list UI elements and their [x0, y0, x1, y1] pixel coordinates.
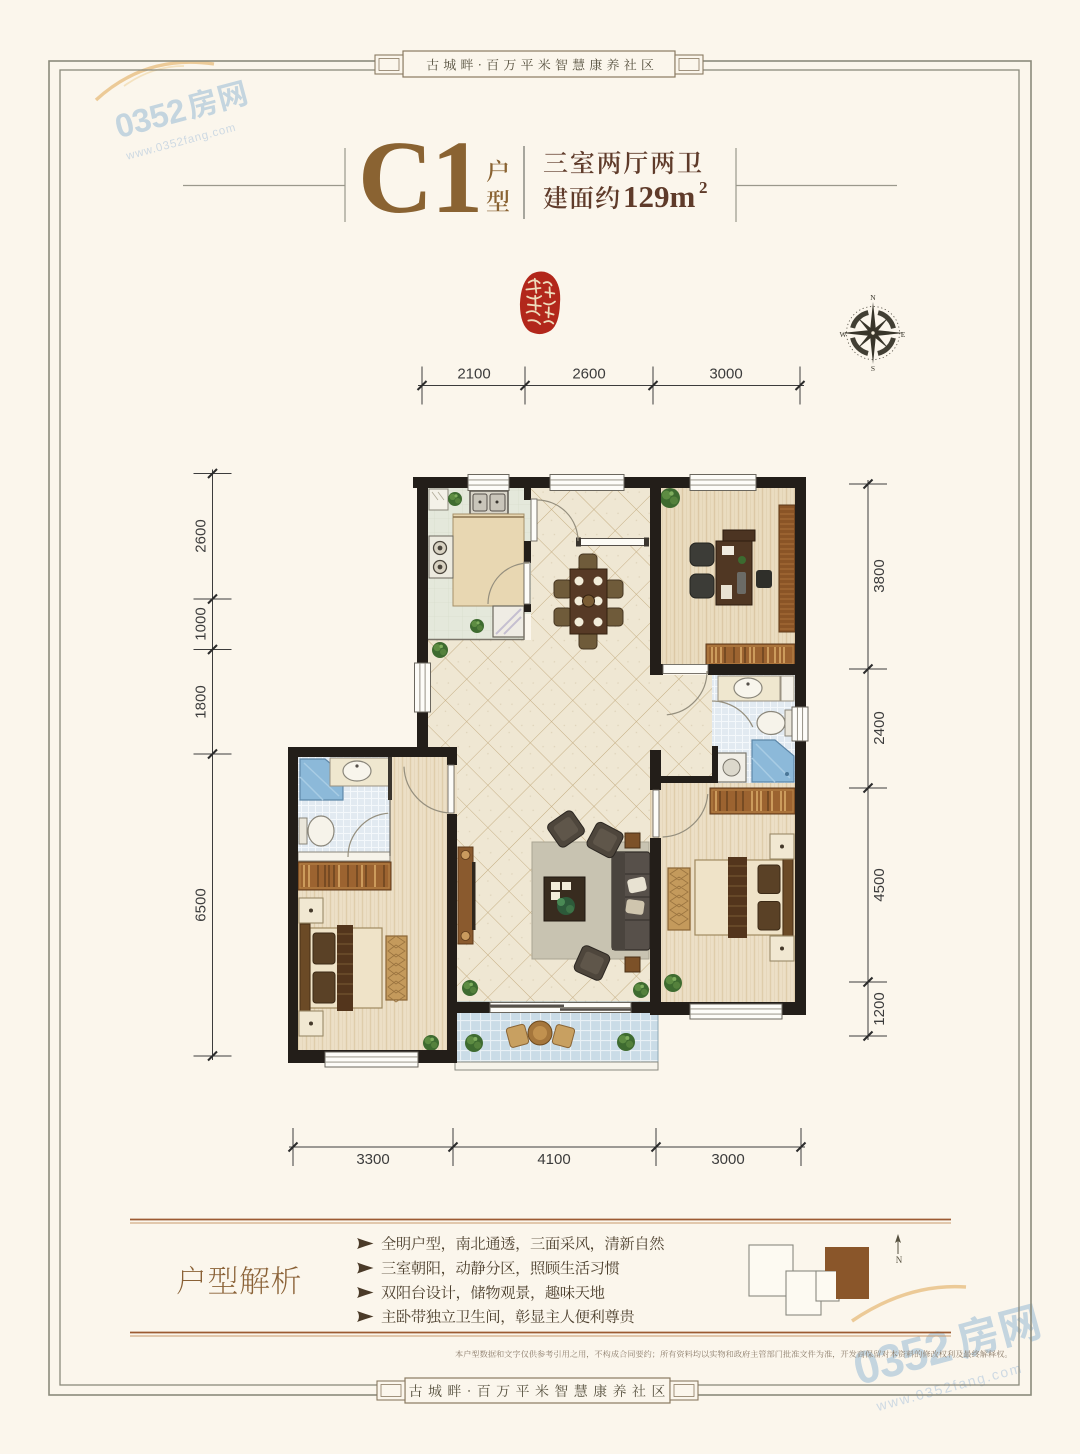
svg-text:3800: 3800: [871, 559, 888, 592]
svg-text:C1: C1: [358, 120, 481, 235]
svg-text:1200: 1200: [871, 992, 888, 1025]
svg-text:E: E: [901, 330, 906, 339]
svg-text:129m: 129m: [623, 179, 696, 214]
svg-text:S: S: [871, 364, 875, 373]
svg-text:3000: 3000: [709, 366, 742, 383]
svg-text:4100: 4100: [537, 1151, 570, 1168]
svg-text:2400: 2400: [871, 711, 888, 744]
svg-text:2600: 2600: [193, 519, 210, 552]
svg-text:1000: 1000: [193, 607, 210, 640]
svg-text:6500: 6500: [193, 888, 210, 921]
svg-text:2: 2: [699, 178, 708, 197]
svg-text:3000: 3000: [711, 1151, 744, 1168]
svg-text:W: W: [839, 330, 847, 339]
svg-text:2600: 2600: [572, 366, 605, 383]
svg-text:N: N: [870, 293, 876, 302]
svg-text:1800: 1800: [193, 685, 210, 718]
svg-text:N: N: [896, 1255, 903, 1265]
svg-text:4500: 4500: [871, 868, 888, 901]
svg-text:3300: 3300: [356, 1151, 389, 1168]
svg-text:2100: 2100: [457, 366, 490, 383]
